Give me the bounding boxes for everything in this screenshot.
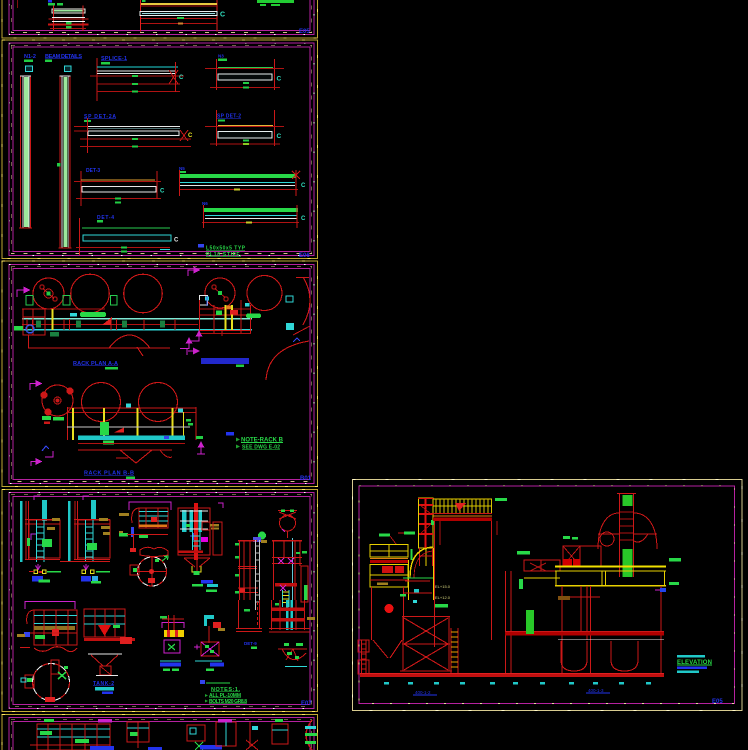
svg-text:C: C <box>301 216 306 222</box>
svg-text:C: C <box>188 133 193 139</box>
svg-text:C: C <box>277 133 282 140</box>
svg-text:C: C <box>277 76 282 83</box>
svg-text:C: C <box>301 183 306 189</box>
svg-text:E07: E07 <box>301 701 312 707</box>
svg-text:E06: E06 <box>299 253 310 259</box>
svg-text:C: C <box>160 189 165 195</box>
svg-text:N3: N3 <box>218 54 224 59</box>
svg-text:E05: E05 <box>712 699 723 705</box>
svg-text:B01: B01 <box>300 476 312 482</box>
svg-text:C: C <box>220 12 225 19</box>
svg-text:400-1-3: 400-1-3 <box>588 688 604 693</box>
svg-text:400-1-2: 400-1-2 <box>415 690 431 695</box>
svg-text:N1-2: N1-2 <box>24 54 36 60</box>
svg-text:C: C <box>174 238 179 244</box>
svg-text:DET-9: DET-9 <box>244 641 257 646</box>
svg-text:DET-4: DET-4 <box>97 215 114 221</box>
svg-text:EL+15.0: EL+15.0 <box>435 584 451 589</box>
svg-text:EL+12.0: EL+12.0 <box>435 595 451 600</box>
svg-text:DET-3: DET-3 <box>86 168 100 174</box>
svg-text:C: C <box>179 75 184 81</box>
svg-text:E05: E05 <box>299 29 310 35</box>
